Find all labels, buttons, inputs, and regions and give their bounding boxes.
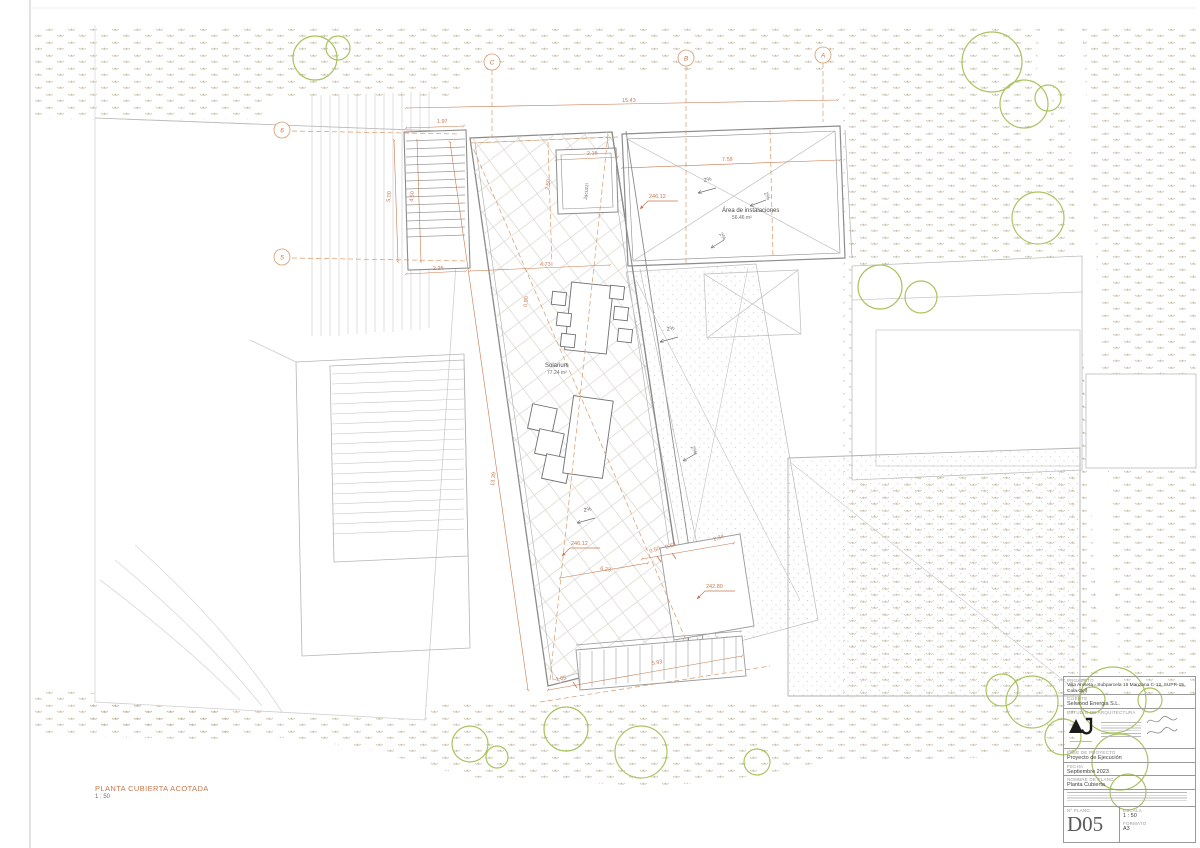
signature-icon: [1145, 715, 1179, 739]
plan-number-value: D05: [1067, 813, 1116, 835]
title-block: PROYECTO Villa Aniseta - Subparcela 15 M…: [1063, 676, 1196, 843]
grid-letter-a: A: [820, 53, 825, 60]
view-scale-text: 1 : 50: [95, 794, 209, 800]
scale-cell: ESCALA 1 : 50 FORMATO A3: [1120, 807, 1195, 842]
grid-letter-b: B: [684, 56, 689, 63]
drawing-sheet: C B A 6 5 15.431.975.004.502.502.167.592…: [0, 0, 1200, 848]
annotation-level: 246.12: [649, 194, 666, 200]
title-block-studio: ESTUDIO DE ARQUITECTURA: [1064, 709, 1195, 749]
annotation-dim: 7.59: [722, 157, 733, 163]
grid-number-6: 6: [280, 128, 284, 135]
aj-logo-icon: [1067, 716, 1097, 736]
title-block-disclaimer: [1064, 790, 1195, 807]
title-block-bottom: Nº PLANO D05 ESCALA 1 : 50 FORMATO A3: [1064, 807, 1195, 842]
annotation-level: 246.12: [571, 541, 588, 547]
grid-letter-c: C: [490, 60, 495, 67]
plan-canvas: C B A 6 5 15.431.975.004.502.502.167.592…: [0, 0, 1200, 848]
project-value: Villa Aniseta - Subparcela 15 Manzana C-…: [1067, 683, 1192, 695]
title-block-date: FECHA Septiembre 2023: [1064, 763, 1195, 776]
view-title: PLANTA CUBIERTA ACOTADA 1 : 50: [95, 784, 209, 800]
logo-subtext-lines: [1070, 741, 1092, 744]
phase-value: Proyecto de Ejecución: [1067, 755, 1192, 761]
disclaimer-text-lines: [1067, 792, 1187, 803]
annotation-lbl: Área de instalaciones: [722, 207, 779, 214]
annotation-level: 242.80: [706, 584, 723, 590]
annotation-dim: 15.43: [622, 98, 636, 104]
annotation-lblsm: 77.24 m²: [547, 370, 567, 376]
annotation-dim: 13.39: [490, 472, 498, 486]
title-block-project: PROYECTO Villa Aniseta - Subparcela 15 M…: [1064, 677, 1195, 695]
annotation-lbl: Solarium: [545, 363, 569, 369]
roof-plan: [404, 126, 852, 690]
format-value: A3: [1123, 826, 1192, 832]
annotation-dim: 1.97: [437, 119, 448, 125]
title-block-client: CLIENTE Selwood Energia S.L.: [1064, 695, 1195, 709]
annotation-dim: 4.73: [540, 262, 551, 268]
client-value: Selwood Energia S.L.: [1067, 701, 1192, 707]
grid-number-5: 5: [280, 255, 284, 262]
plan-number-cell: Nº PLANO D05: [1064, 807, 1120, 842]
signatures: [1145, 715, 1179, 744]
title-block-phase: FASE DE PROYECTO Proyecto de Ejecución: [1064, 749, 1195, 763]
jacuzzi: [556, 148, 618, 214]
annotation-dim: 2.25: [433, 266, 444, 272]
studio-stamp-lines: [1101, 722, 1141, 738]
studio-logo: [1067, 716, 1097, 744]
title-block-sheet-name: NOMBRE DE PLANO Planta Cubierta: [1064, 776, 1195, 790]
view-title-text: PLANTA CUBIERTA ACOTADA: [95, 784, 209, 793]
sheet-name-value: Planta Cubierta: [1067, 782, 1192, 788]
date-value: Septiembre 2023: [1067, 769, 1192, 775]
scale-value: 1 : 50: [1123, 813, 1192, 819]
annotation-dim: 2.16: [587, 151, 598, 157]
annotation-lblsm: 56.46 m²: [732, 215, 752, 221]
